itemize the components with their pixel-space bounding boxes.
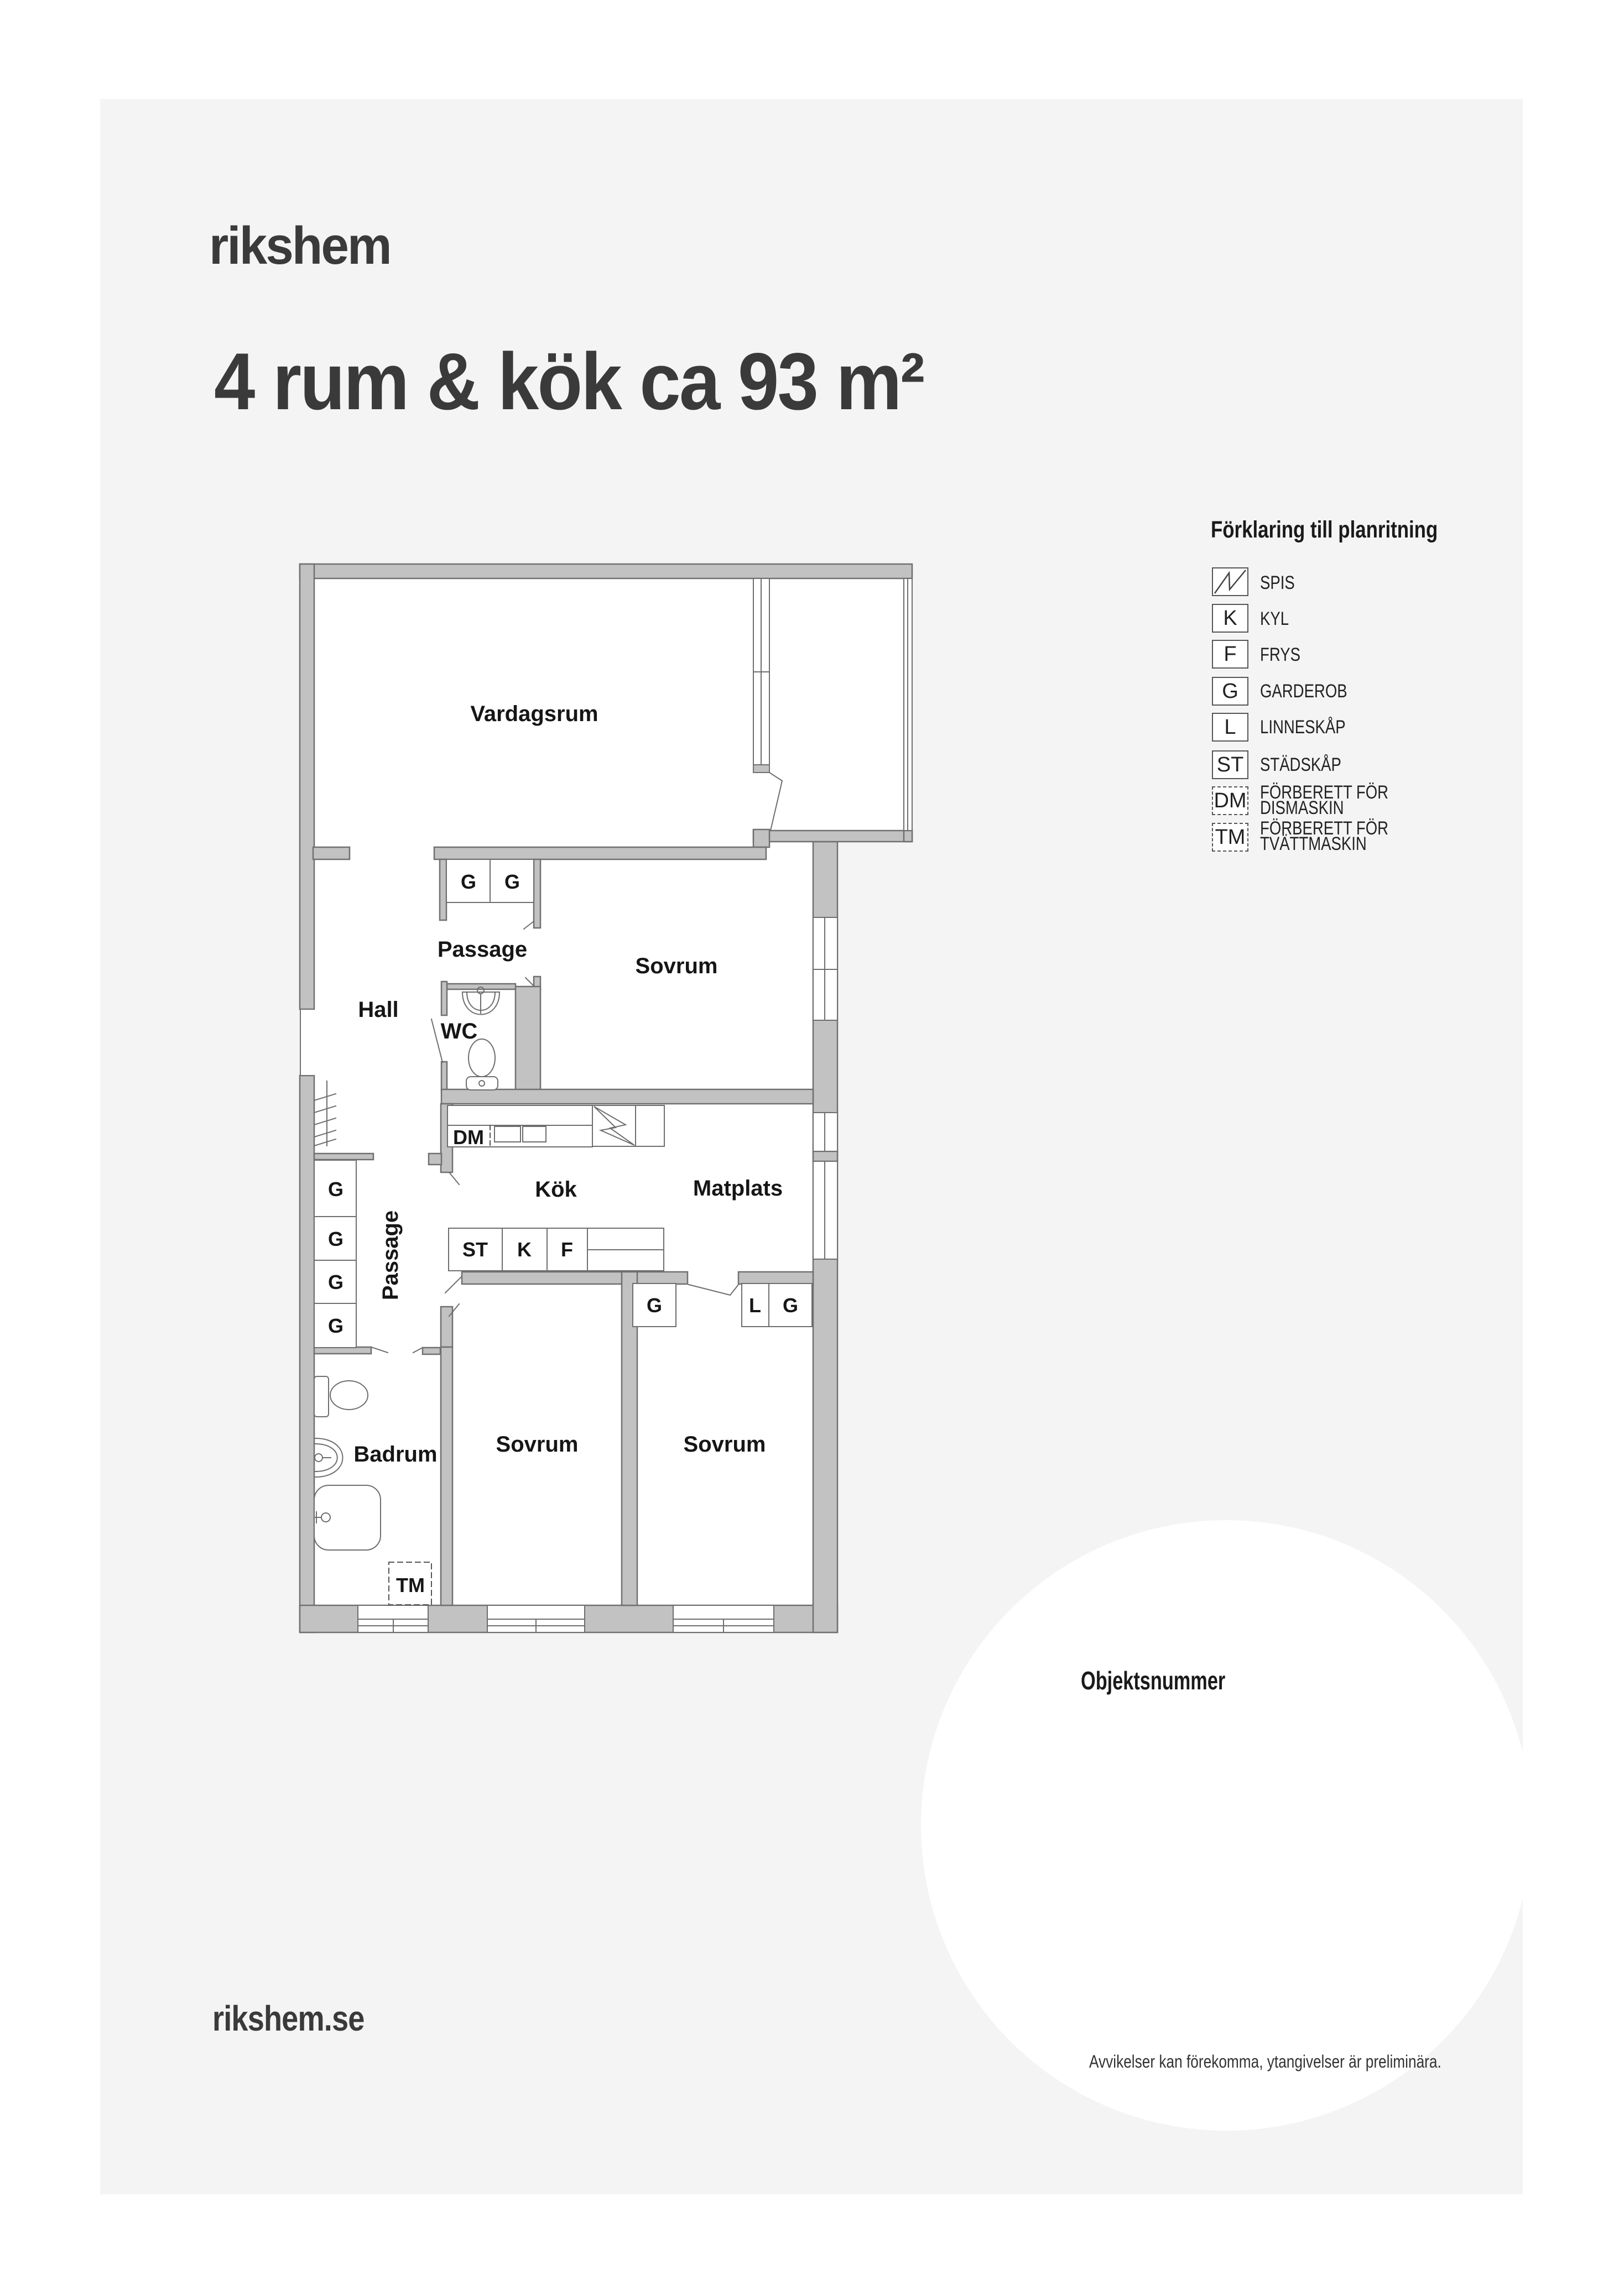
svg-text:Sovrum: Sovrum [684,1432,766,1457]
svg-text:F: F [561,1238,573,1261]
svg-text:K: K [517,1238,532,1261]
svg-text:Matplats: Matplats [693,1176,783,1201]
svg-text:Vardagsrum: Vardagsrum [470,702,598,726]
svg-text:G: G [461,870,476,893]
svg-text:Hall: Hall [358,998,398,1022]
svg-text:G: G [328,1178,343,1201]
svg-text:DM: DM [453,1126,484,1149]
svg-text:Sovrum: Sovrum [496,1432,579,1457]
svg-text:G: G [783,1294,798,1317]
svg-text:Kök: Kök [535,1177,577,1202]
svg-text:G: G [328,1228,343,1250]
svg-text:G: G [328,1314,343,1337]
svg-text:G: G [647,1294,662,1317]
svg-text:WC: WC [441,1019,478,1043]
svg-text:ST: ST [462,1238,488,1261]
svg-text:G: G [328,1271,343,1293]
svg-text:Sovrum: Sovrum [636,954,718,978]
svg-text:Passage: Passage [438,937,527,962]
svg-text:L: L [749,1294,761,1317]
svg-text:Passage: Passage [378,1210,403,1300]
svg-text:Badrum: Badrum [353,1442,437,1467]
svg-text:TM: TM [396,1574,425,1596]
svg-text:G: G [504,870,520,893]
